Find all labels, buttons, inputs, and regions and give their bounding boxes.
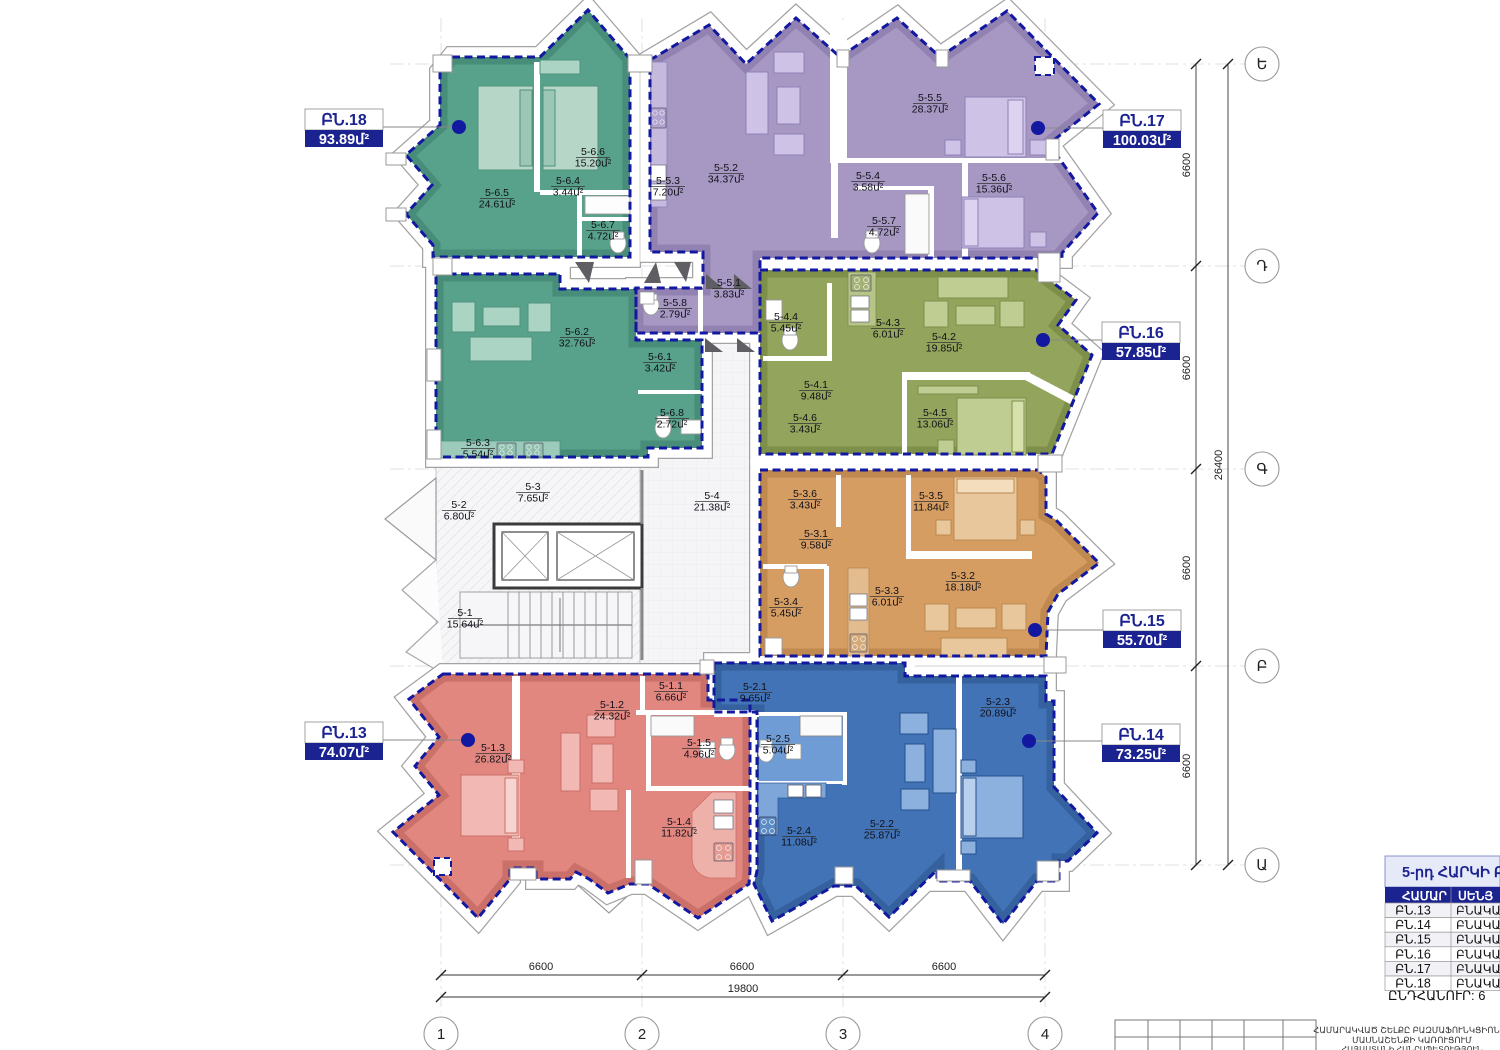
svg-text:5.45մ²: 5.45մ² [771,608,802,620]
svg-text:ԲՆ.14: ԲՆ.14 [1395,918,1431,932]
svg-text:3.43մ²: 3.43մ² [790,500,821,512]
svg-text:ԲՆ.16: ԲՆ.16 [1395,947,1431,961]
svg-text:4.72մ²: 4.72մ² [588,231,619,243]
svg-text:5-5.4: 5-5.4 [856,170,880,182]
svg-text:6.80մ²: 6.80մ² [444,511,475,523]
svg-text:15.64մ²: 15.64մ² [447,619,484,631]
svg-text:5-6.6: 5-6.6 [581,146,605,158]
svg-text:5-5.3: 5-5.3 [656,175,680,187]
svg-text:2: 2 [638,1026,646,1043]
svg-text:5-4.3: 5-4.3 [876,317,900,329]
svg-text:15.20մ²: 15.20մ² [575,158,612,170]
svg-text:34.37մ²: 34.37մ² [708,174,745,186]
svg-text:15.36մ²: 15.36մ² [976,184,1013,196]
svg-text:Դ: Դ [1256,258,1267,275]
svg-text:6600: 6600 [730,961,754,973]
svg-text:2.72մ²: 2.72մ² [657,419,688,431]
svg-text:5-6.2: 5-6.2 [565,326,589,338]
svg-text:21.38մ²: 21.38մ² [694,502,731,514]
svg-text:3.58մ²: 3.58մ² [853,182,884,194]
svg-text:11.84մ²: 11.84մ² [913,502,949,514]
svg-text:26400: 26400 [1213,450,1225,481]
svg-text:7.65մ²: 7.65մ² [518,493,549,505]
svg-text:26.82մ²: 26.82մ² [475,754,512,766]
svg-text:6.01մ²: 6.01մ² [873,329,904,341]
svg-text:ՀԱՅԱՍՏԱՆԻ ՀԱՆՐԱՊԵՏՈՒԹՅՈՒՆ: ՀԱՅԱՍՏԱՆԻ ՀԱՆՐԱՊԵՏՈՒԹՅՈՒՆ [1341,1045,1482,1050]
svg-text:5-4.1: 5-4.1 [804,379,828,391]
svg-text:19800: 19800 [728,983,759,995]
svg-text:5.45մ²: 5.45մ² [771,323,802,335]
svg-text:93.89մ²: 93.89մ² [319,132,369,148]
svg-text:ԲՆԱԿԱՐ: ԲՆԱԿԱՐ [1456,962,1500,976]
svg-text:18.18մ²: 18.18մ² [945,582,982,594]
svg-text:ԲՆ.13: ԲՆ.13 [321,725,367,742]
svg-text:3.83մ²: 3.83մ² [714,289,745,301]
svg-text:9.48մ²: 9.48մ² [801,391,832,403]
svg-text:6600: 6600 [1181,754,1193,778]
svg-text:5-1.3: 5-1.3 [481,742,505,754]
svg-text:55.70մ²: 55.70մ² [1117,633,1167,649]
svg-text:5-3.3: 5-3.3 [875,585,899,597]
svg-text:5-1.1: 5-1.1 [659,680,683,692]
svg-text:5-4.4: 5-4.4 [774,311,798,323]
svg-text:Գ: Գ [1256,461,1267,478]
svg-text:Ա: Ա [1256,857,1268,874]
svg-text:5-3.6: 5-3.6 [793,488,817,500]
svg-text:5-3.1: 5-3.1 [804,528,828,540]
svg-text:13.06մ²: 13.06մ² [917,419,954,431]
svg-text:28.37մ²: 28.37մ² [912,104,949,116]
svg-text:5-5.1: 5-5.1 [717,277,741,289]
svg-text:24.61մ²: 24.61մ² [479,199,516,211]
svg-text:5-1.4: 5-1.4 [667,816,691,828]
svg-text:5-3.5: 5-3.5 [919,490,943,502]
svg-text:3.42մ²: 3.42մ² [645,363,676,375]
svg-text:5-5.6: 5-5.6 [982,172,1006,184]
svg-text:100.03մ²: 100.03մ² [1113,133,1172,149]
svg-text:ՀԱՄԱՐ: ՀԱՄԱՐ [1402,889,1447,903]
svg-text:5-2.5: 5-2.5 [766,733,790,745]
svg-text:3.43մ²: 3.43մ² [790,424,821,436]
svg-text:ԸՆԴՀԱՆՈՒՐ: 6: ԸՆԴՀԱՆՈՒՐ: 6 [1388,988,1486,1003]
svg-text:6.01մ²: 6.01մ² [872,597,903,609]
svg-text:1: 1 [437,1026,445,1043]
svg-text:ԲՆԱԿԱՐ: ԲՆԱԿԱՐ [1456,947,1500,961]
svg-text:4.72մ²: 4.72մ² [869,227,900,239]
svg-text:7.20մ²: 7.20մ² [653,187,684,199]
svg-text:5-1.2: 5-1.2 [600,699,624,711]
svg-text:6600: 6600 [1181,556,1193,580]
svg-text:ԲՆԱԿԱՐ: ԲՆԱԿԱՐ [1456,918,1500,932]
svg-text:5-2: 5-2 [451,499,466,511]
svg-text:5.04մ²: 5.04մ² [763,745,794,757]
svg-text:6600: 6600 [529,961,553,973]
svg-text:5-1: 5-1 [457,607,472,619]
svg-text:ԲՆ.15: ԲՆ.15 [1395,933,1431,947]
svg-text:5-2.1: 5-2.1 [743,681,767,693]
svg-text:3.44մ²: 3.44մ² [553,187,584,199]
svg-text:Ե: Ե [1257,56,1268,73]
svg-text:11.82մ²: 11.82մ² [661,828,697,840]
svg-text:5-3.4: 5-3.4 [774,596,798,608]
svg-text:5-6.7: 5-6.7 [591,219,615,231]
svg-text:5-2.4: 5-2.4 [787,825,811,837]
svg-text:5.54մ²: 5.54մ² [463,449,494,461]
svg-text:6600: 6600 [932,961,956,973]
svg-text:19.85մ²: 19.85մ² [926,343,963,355]
svg-text:6600: 6600 [1181,153,1193,177]
svg-text:32.76մ²: 32.76մ² [559,338,596,350]
svg-text:5-5.8: 5-5.8 [663,297,687,309]
svg-text:ՀԱՄԱՐԱԿՎԱԾ ՇԵԼՔԸ ԲԱԶՄԱՖՈՒՆԿՑԻՈ: ՀԱՄԱՐԱԿՎԱԾ ՇԵԼՔԸ ԲԱԶՄԱՖՈՒՆԿՑԻՈՆԱԼ [1313,1025,1500,1035]
svg-text:20.89մ²: 20.89մ² [980,708,1017,720]
svg-text:4.96մ²: 4.96մ² [684,749,715,761]
svg-text:5-րդ ՀԱՐԿԻ ԲՆԱԿ: 5-րդ ՀԱՐԿԻ ԲՆԱԿ [1402,865,1500,881]
svg-text:Բ: Բ [1257,658,1268,675]
svg-text:9.65մ²: 9.65մ² [740,693,771,705]
svg-text:5-5.5: 5-5.5 [918,92,942,104]
svg-text:57.85մ²: 57.85մ² [1116,345,1166,361]
svg-text:5-4.5: 5-4.5 [923,407,947,419]
svg-text:ՄԱՍՆԱՇԵՆՔԻ ԿԱՌՈՒՑՈՒՄ: ՄԱՍՆԱՇԵՆՔԻ ԿԱՌՈՒՑՈՒՄ [1352,1035,1472,1045]
svg-text:5-6.3: 5-6.3 [466,437,490,449]
svg-text:ԲՆԱԿԱՐ: ԲՆԱԿԱՐ [1456,904,1500,918]
svg-text:5-6.5: 5-6.5 [485,187,509,199]
svg-text:5-4.2: 5-4.2 [932,331,956,343]
svg-text:ԲՆ.14: ԲՆ.14 [1118,727,1164,744]
svg-text:6.66մ²: 6.66մ² [656,692,687,704]
svg-text:5-4.6: 5-4.6 [793,412,817,424]
svg-text:5-2.2: 5-2.2 [870,818,894,830]
svg-text:74.07մ²: 74.07մ² [319,745,369,761]
svg-text:ԲՆ.17: ԲՆ.17 [1119,113,1165,130]
svg-text:5-6.8: 5-6.8 [660,407,684,419]
svg-text:5-6.4: 5-6.4 [556,175,580,187]
svg-text:5-3.2: 5-3.2 [951,570,975,582]
svg-text:5-1.5: 5-1.5 [687,737,711,749]
svg-text:ԲՆ.13: ԲՆ.13 [1395,904,1431,918]
svg-text:ԲՆ.15: ԲՆ.15 [1119,613,1165,630]
svg-text:ՍԵՆՅ: ՍԵՆՅ [1458,889,1493,903]
svg-text:73.25մ²: 73.25մ² [1116,747,1166,763]
svg-text:25.87մ²: 25.87մ² [864,830,901,842]
svg-text:24.32մ²: 24.32մ² [594,711,631,723]
svg-text:5-6.1: 5-6.1 [648,351,672,363]
svg-text:2.79մ²: 2.79մ² [660,309,691,321]
svg-text:9.58մ²: 9.58մ² [801,540,832,552]
svg-text:3: 3 [839,1026,847,1043]
svg-text:5-4: 5-4 [704,490,719,502]
svg-text:11.08մ²: 11.08մ² [781,837,817,849]
svg-text:6600: 6600 [1181,356,1193,380]
svg-text:5-3: 5-3 [525,481,540,493]
svg-text:4: 4 [1041,1026,1049,1043]
svg-text:5-5.7: 5-5.7 [872,215,896,227]
svg-text:5-5.2: 5-5.2 [714,162,738,174]
svg-text:5-2.3: 5-2.3 [986,696,1010,708]
svg-text:ԲՆ.17: ԲՆ.17 [1395,962,1431,976]
svg-text:ԲՆԱԿԱՐ: ԲՆԱԿԱՐ [1456,933,1500,947]
svg-text:ԲՆ.18: ԲՆ.18 [321,112,367,129]
svg-text:ԲՆ.16: ԲՆ.16 [1118,325,1164,342]
